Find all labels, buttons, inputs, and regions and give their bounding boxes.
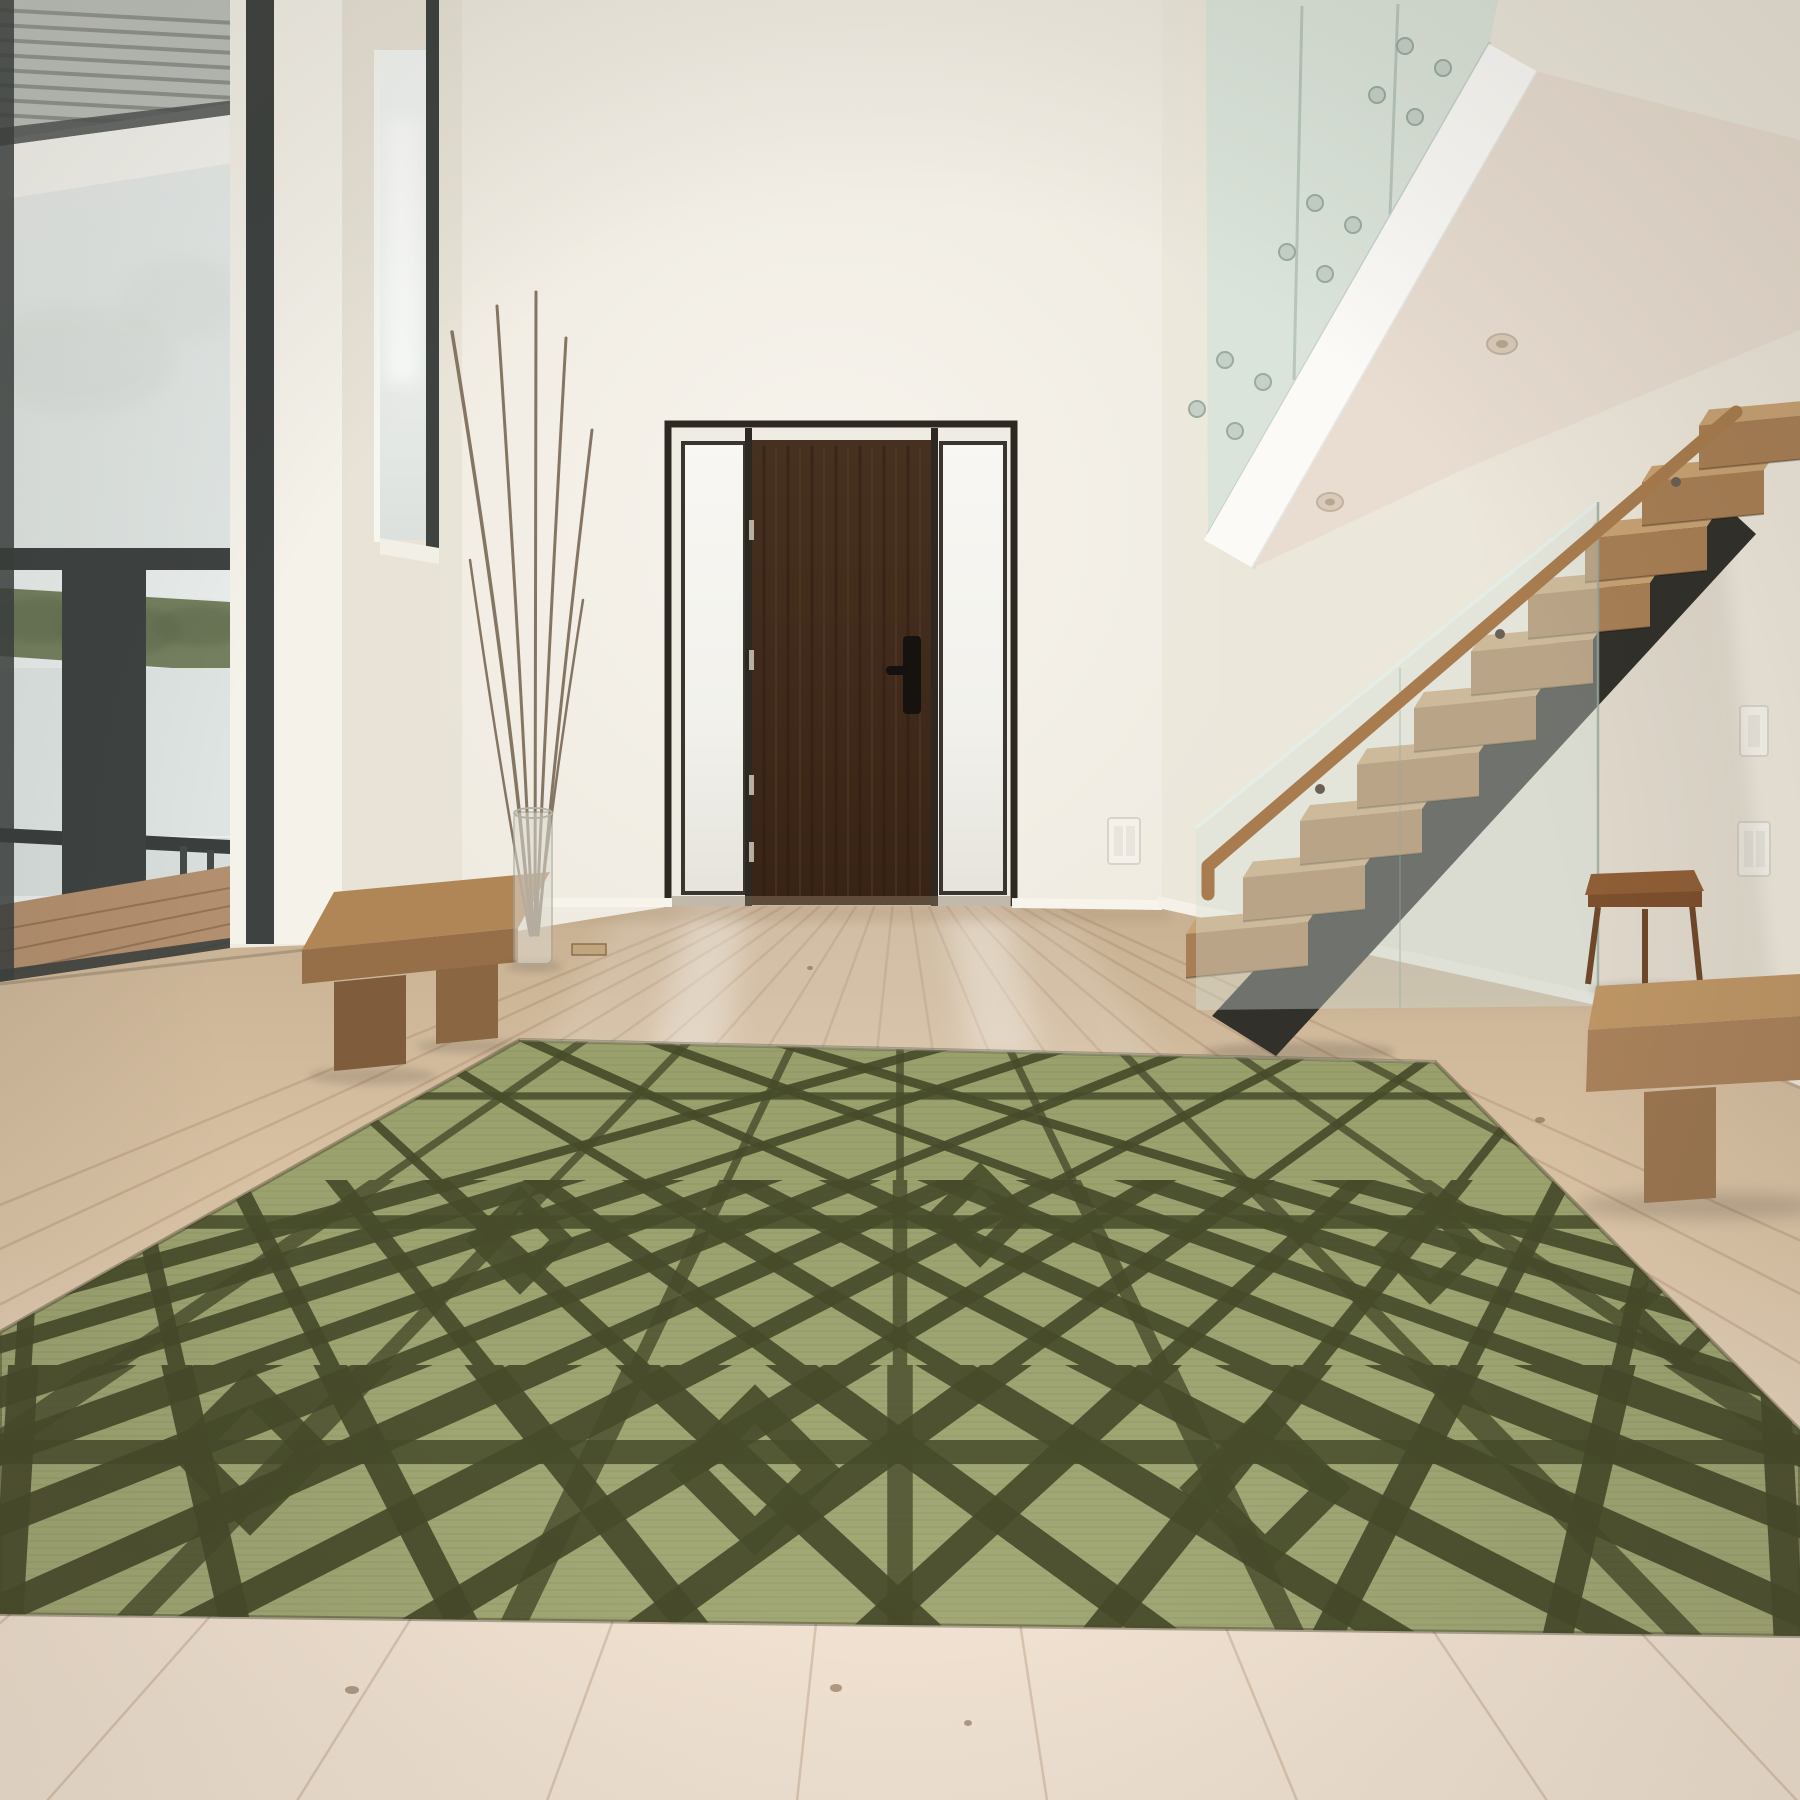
scene: [0, 0, 1800, 1800]
vignette: [0, 0, 1800, 1800]
entry-hall-photo: [0, 0, 1800, 1800]
